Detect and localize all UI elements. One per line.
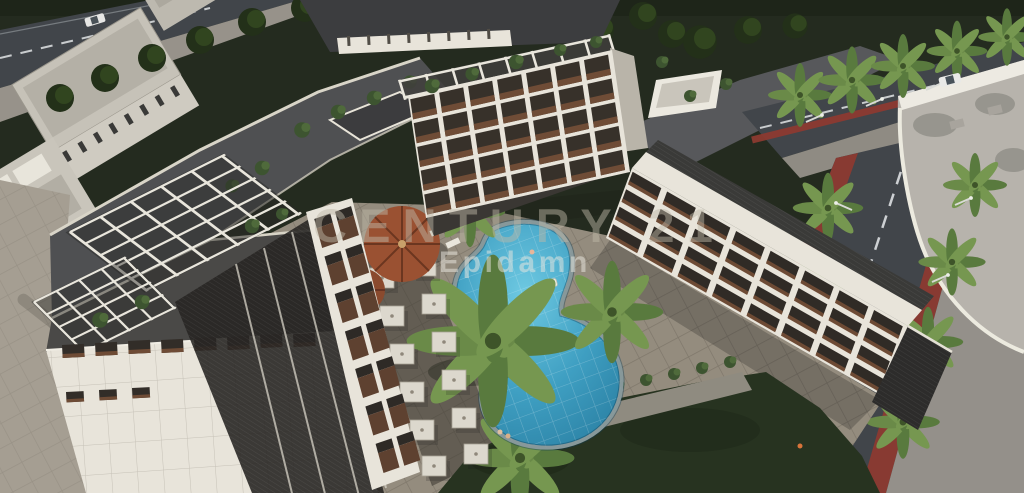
render-canvas: CENTURY 21 Epidamn (0, 0, 1024, 493)
aerial-render (0, 0, 1024, 493)
